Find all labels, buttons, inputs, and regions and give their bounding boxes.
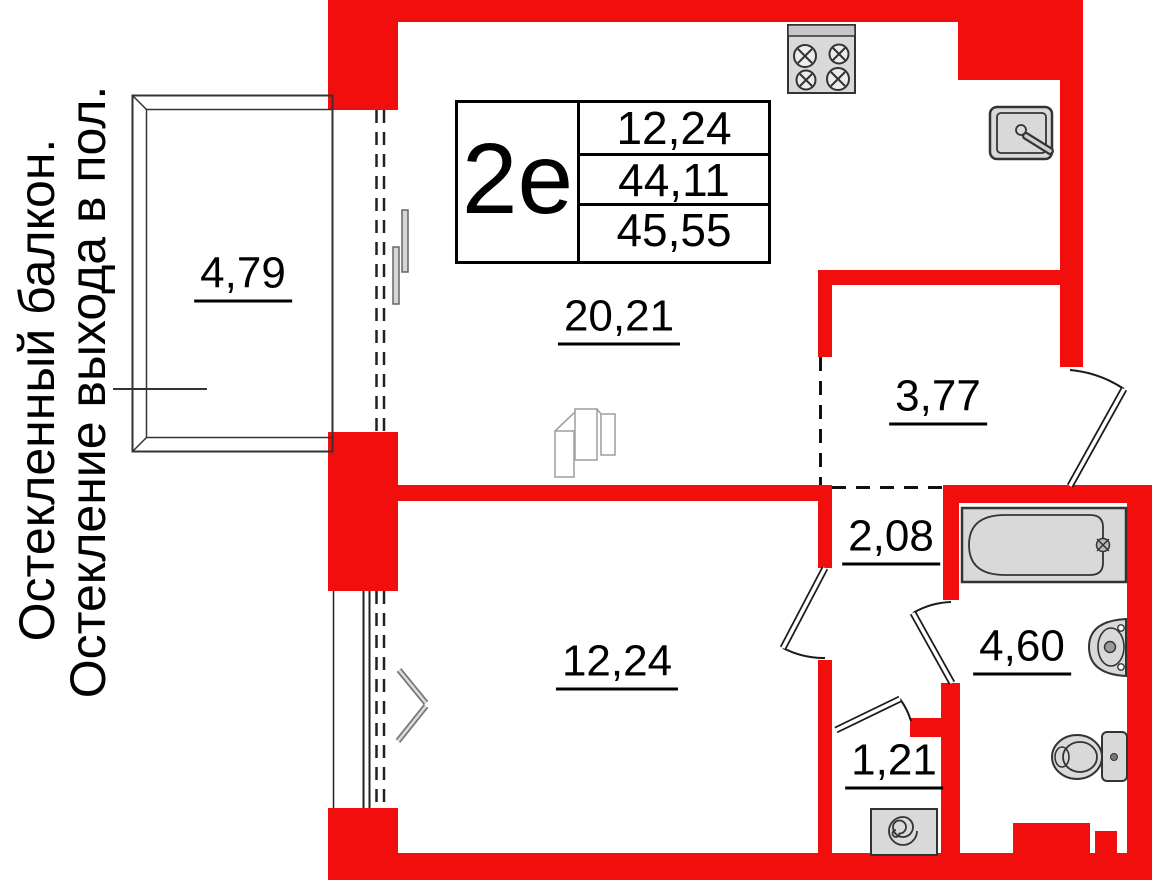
wardrobe-icon xyxy=(555,409,615,477)
bathtub-icon xyxy=(962,508,1126,582)
unit-room-area: 12,24 xyxy=(580,103,768,153)
kitchen-sink-icon xyxy=(990,107,1052,159)
floor-plan: 2е 12,24 44,11 45,55 20,21 3,77 2,08 12,… xyxy=(0,0,1173,880)
room-label-kitchen-living: 20,21 xyxy=(558,293,680,346)
side-note-glazed-balcony: Остекленный балкон. xyxy=(8,139,66,642)
washing-machine-icon xyxy=(871,809,937,855)
stove-icon xyxy=(788,25,855,93)
entrance-door-swing-icon xyxy=(1070,370,1124,486)
side-note-floor-glazing: Остекление выхода в пол. xyxy=(59,86,117,699)
bedroom-door-swing-icon xyxy=(783,568,825,658)
unit-living-area: 44,11 xyxy=(580,153,768,203)
laundry-door-swing-icon xyxy=(836,699,911,730)
room-label-bathroom: 4,60 xyxy=(973,623,1071,676)
bedroom-window xyxy=(334,591,385,808)
window-dashed-line xyxy=(377,110,385,432)
unit-label: 2е xyxy=(458,103,580,261)
window-sash-icon xyxy=(393,210,408,304)
unit-area-values: 12,24 44,11 45,55 xyxy=(580,103,768,254)
washbasin-icon xyxy=(1089,619,1126,676)
bathroom-door-swing-icon xyxy=(913,602,952,683)
unit-info-table: 2е 12,24 44,11 45,55 xyxy=(455,100,771,264)
room-label-hallway: 3,77 xyxy=(889,373,987,426)
room-label-laundry: 1,21 xyxy=(845,737,943,790)
unit-total-area: 45,55 xyxy=(580,203,768,253)
room-label-bedroom: 12,24 xyxy=(556,638,678,691)
room-label-balcony: 4,79 xyxy=(194,250,292,303)
room-label-corridor: 2,08 xyxy=(842,513,940,566)
window-opening-chevron-icon xyxy=(398,670,426,741)
toilet-icon xyxy=(1052,732,1127,781)
